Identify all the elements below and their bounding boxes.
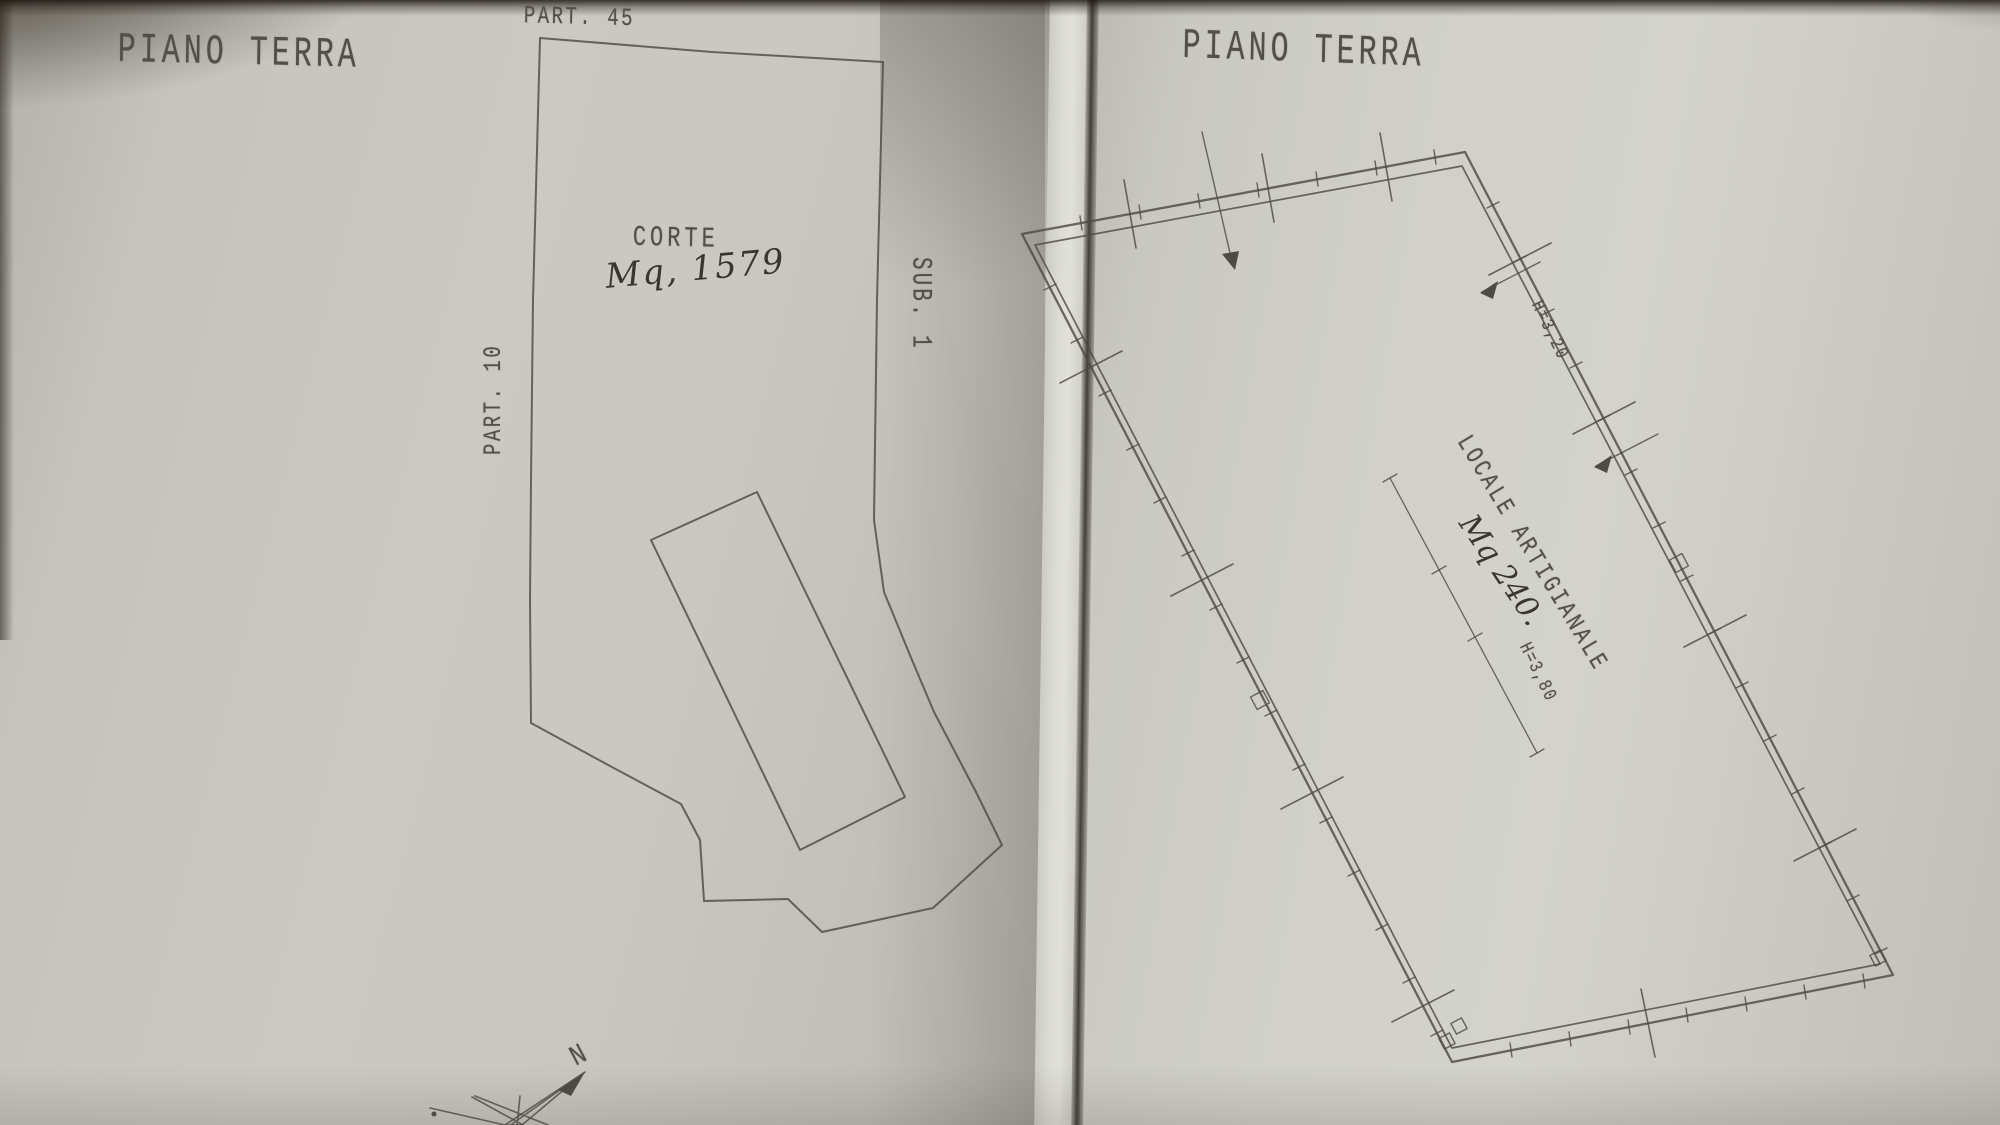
dimension-ticks [1060, 133, 1856, 1057]
plan-linework [0, 0, 2000, 1125]
label-part-10: PART. 10 [482, 344, 507, 455]
wall-ticks-sw [1044, 284, 1443, 1036]
right-sheet-title: PIANO TERRA [1182, 26, 1425, 77]
wall-ticks-se [1510, 974, 1865, 1057]
workshop-outer-wall [1022, 152, 1893, 1062]
dimension-arrows [1202, 132, 1658, 473]
compass-rose [430, 1072, 585, 1125]
courtyard-building-outline [651, 492, 905, 850]
parcel-boundary [530, 38, 1002, 932]
workshop-inner-wall [1035, 166, 1880, 1048]
photo-of-floor-plans: PIANO TERRA PART. 45 CORTE Mq, 1579 SUB.… [0, 0, 2000, 1125]
workshop-building [1022, 132, 1893, 1062]
label-sub-1: SUB. 1 [906, 257, 933, 351]
label-part-45: PART. 45 [524, 4, 636, 32]
wall-ticks-nw [1080, 150, 1436, 230]
left-sheet-title: PIANO TERRA [117, 30, 360, 78]
